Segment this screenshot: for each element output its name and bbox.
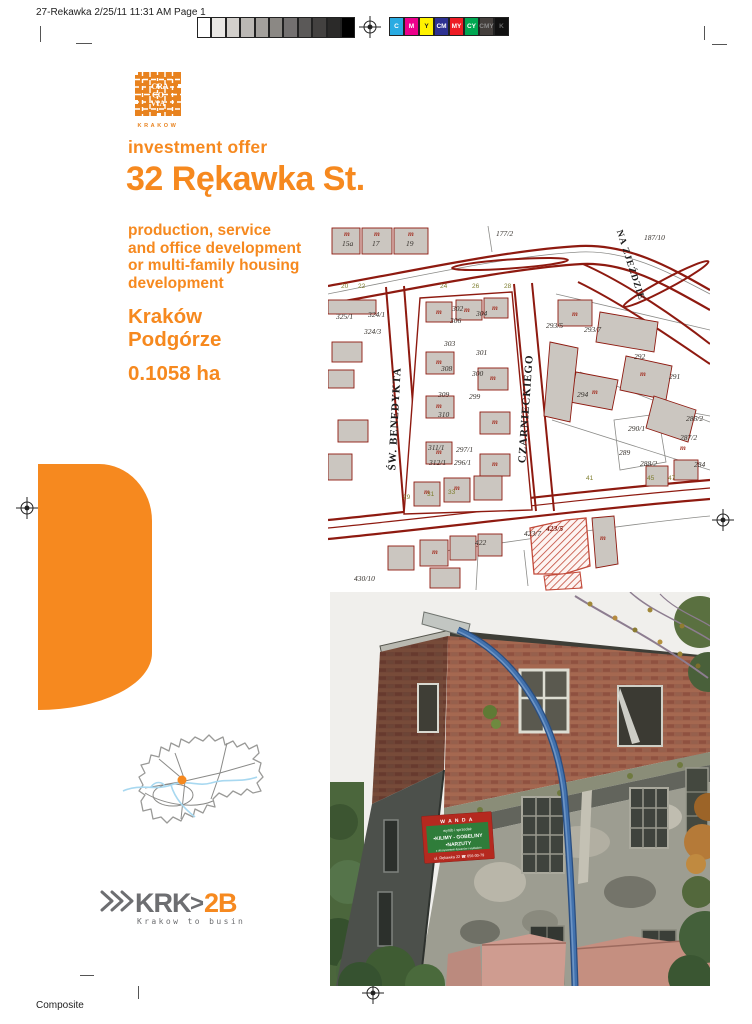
gray-swatch [226,17,240,38]
cmyk-calibration-bar: C M Y CM MY CY CMY K [389,17,509,36]
gt-text: > [190,890,204,917]
svg-text:m: m [592,387,598,396]
color-swatch: CM [434,17,449,36]
svg-text:423/7: 423/7 [524,529,541,538]
svg-text:22: 22 [358,283,366,290]
svg-text:m: m [436,307,442,316]
svg-text:m: m [408,229,414,238]
color-swatch: CMY [479,17,494,36]
svg-text:m: m [680,443,686,452]
crop-mark [40,26,41,42]
svg-text:20: 20 [341,283,349,290]
svg-text:294: 294 [577,390,589,399]
svg-text:287/2: 287/2 [680,433,697,442]
cracovia-logo: CRA CO VIA KRAKOW [127,72,189,132]
description-line: development [128,275,301,293]
color-swatch: CY [464,17,479,36]
svg-text:45: 45 [647,475,655,482]
svg-text:m: m [600,533,606,542]
registration-mark-icon [359,16,381,38]
svg-text:310: 310 [437,410,450,419]
svg-text:289: 289 [619,448,631,457]
svg-text:296/1: 296/1 [454,458,471,467]
svg-text:288/2: 288/2 [640,459,657,468]
svg-text:306: 306 [449,316,462,325]
cadastral-map: mmm mmm mmm mmm mm mm mm mm 20 22 24 26 … [328,224,710,591]
crop-mark [712,44,727,45]
cracovia-sub-label: KRAKOW [138,123,179,129]
svg-text:28: 28 [504,283,512,290]
svg-text:47: 47 [668,475,676,482]
color-swatch: M [404,17,419,36]
crop-mark [76,43,92,44]
svg-text:293/5: 293/5 [546,321,563,330]
gray-swatch [211,17,225,38]
svg-text:m: m [492,459,498,468]
svg-text:303: 303 [443,339,456,348]
svg-text:308: 308 [440,364,453,373]
color-swatch: C [389,17,404,36]
cracovia-line: VIA [151,99,166,108]
svg-text:292: 292 [634,352,646,361]
svg-text:284: 284 [694,460,706,469]
svg-text:m: m [374,229,380,238]
site-photo-illustration: W A N D A wyrób i sprzedaż •KILIMY - GOB… [330,592,710,986]
description-line: or multi-family housing [128,257,301,275]
crop-mark [80,975,94,976]
svg-text:29: 29 [403,494,411,501]
svg-text:m: m [344,229,350,238]
svg-text:300: 300 [471,369,484,378]
print-proof-page: 27-Rekawka 2/25/11 11:31 AM Page 1 C M Y… [0,0,752,1024]
crop-mark [138,986,139,999]
krk-text: KRK [135,888,192,918]
district-label: Podgórze [128,328,221,351]
svg-text:15a: 15a [342,239,354,248]
svg-text:312/1: 312/1 [428,458,446,467]
svg-text:299: 299 [469,392,481,401]
svg-text:301: 301 [475,348,487,357]
svg-text:24: 24 [440,283,448,290]
svg-text:309: 309 [437,390,450,399]
svg-text:297/1: 297/1 [456,445,473,454]
industrial-window [522,797,564,873]
svg-text:430/10: 430/10 [354,574,375,583]
2b-text: 2B [204,888,237,918]
svg-text:m: m [490,373,496,382]
gray-swatch [312,17,326,38]
city-label: Kraków [128,305,221,328]
gray-swatch [327,17,341,38]
svg-text:19: 19 [406,239,414,248]
color-swatch: K [494,17,509,36]
wanda-sign: W A N D A wyrób i sprzedaż •KILIMY - GOB… [421,812,494,864]
area-label: 0.1058 ha [128,362,220,386]
svg-text:325/1: 325/1 [335,312,353,321]
gray-swatch [197,17,211,38]
svg-text:293/7: 293/7 [584,325,601,334]
svg-text:41: 41 [586,475,594,482]
svg-text:311/1: 311/1 [427,443,445,452]
svg-text:291: 291 [669,372,680,381]
color-swatch: MY [449,17,464,36]
svg-text:324/1: 324/1 [367,310,385,319]
svg-text:17: 17 [372,239,380,248]
svg-text:290/1: 290/1 [628,424,645,433]
registration-mark-icon [712,509,734,531]
svg-text:m: m [492,417,498,426]
svg-text:423/5: 423/5 [545,524,563,533]
svg-text:324/3: 324/3 [363,327,381,336]
gray-swatch [298,17,312,38]
svg-text:304: 304 [475,309,488,318]
gray-swatch [240,17,254,38]
svg-text:33: 33 [448,489,456,496]
offer-kicker: investment offer [128,137,267,158]
gray-swatch [255,17,269,38]
svg-text:m: m [492,303,498,312]
gray-swatch [283,17,297,38]
industrial-window [630,788,668,848]
composite-label: Composite [36,1000,84,1011]
svg-text:m: m [436,401,442,410]
tagline-text: Krakow to business [137,917,245,926]
krk2b-logo: KRK > 2B Krakow to business [97,879,245,927]
svg-text:31: 31 [427,491,435,498]
site-location-dot [178,776,187,785]
printer-slug: 27-Rekawka 2/25/11 11:31 AM Page 1 [36,7,206,18]
gray-swatch [341,17,355,38]
description-line: production, service [128,222,301,240]
chevrons-icon [102,892,132,910]
grayscale-calibration-bar [197,17,355,38]
location-block: Kraków Podgórze [128,305,221,351]
orange-halfcircle-graphic [38,464,152,710]
svg-text:187/10: 187/10 [644,233,665,242]
gray-swatch [269,17,283,38]
svg-text:422: 422 [475,538,487,547]
krakow-outline-map [115,733,265,833]
broken-window [618,686,662,746]
description-line: and office development [128,240,301,258]
svg-text:m: m [432,547,438,556]
svg-text:177/2: 177/2 [496,229,513,238]
crop-mark [704,26,705,40]
svg-text:m: m [464,305,470,314]
svg-text:286/2: 286/2 [686,414,703,423]
svg-text:m: m [640,369,646,378]
svg-text:302: 302 [451,304,464,313]
svg-text:m: m [572,309,578,318]
svg-text:26: 26 [472,283,480,290]
offer-description: production, service and office developme… [128,222,301,292]
page-title: 32 Rękawka St. [126,160,365,199]
registration-mark-icon [16,497,38,519]
color-swatch: Y [419,17,434,36]
